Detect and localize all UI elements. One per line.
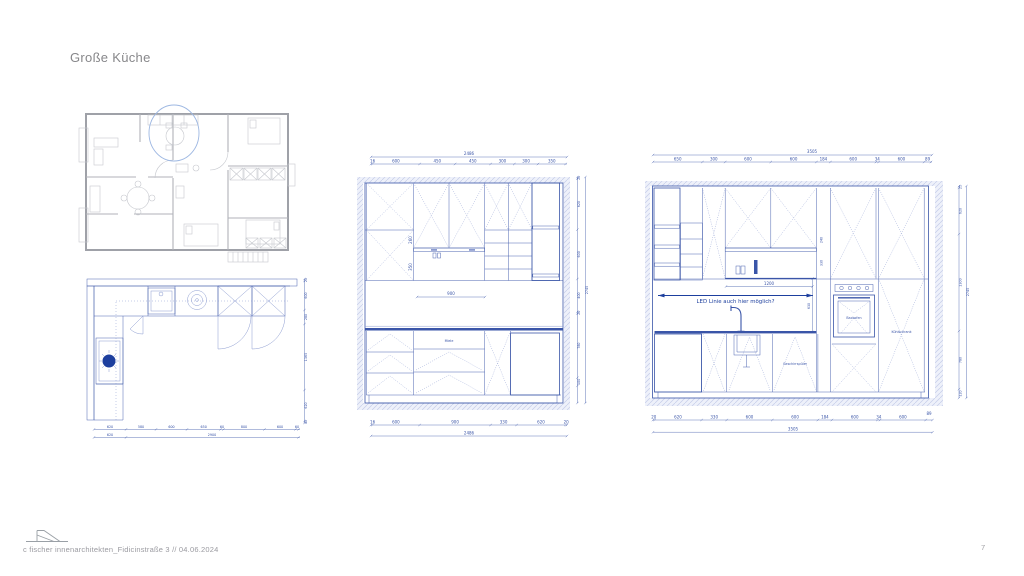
- dimension-text: 620: [537, 419, 545, 424]
- dimension-text: 300: [522, 158, 530, 163]
- dimension-row: 20 600 280 1365 620 40: [303, 278, 308, 424]
- dimension-text: 16: [370, 419, 376, 424]
- dimension-text: 1300: [958, 278, 962, 286]
- dimension-row: 25 620 1300 780 120 2745: [958, 185, 970, 399]
- appliance-label: Kühlschrank: [891, 330, 911, 334]
- dimension-text: 330: [710, 414, 718, 419]
- dimension-text: 120: [958, 390, 962, 396]
- dimension-text: 350: [548, 158, 556, 163]
- dimension-text: 2486: [464, 151, 475, 156]
- upper-cabinets: [365, 183, 563, 281]
- dimension-text: 2745: [585, 286, 589, 294]
- dimension-text: 800: [241, 425, 247, 429]
- dimension-text: 16: [370, 158, 376, 163]
- dimension-text: 400: [577, 292, 581, 298]
- section-cut-cabinet: [654, 188, 680, 280]
- dimension-text: 630: [807, 303, 811, 309]
- faucet-icon: [731, 306, 745, 332]
- company-logo-icon: [24, 527, 70, 545]
- dimension-text: 620: [674, 414, 682, 419]
- dimension-text: 60: [220, 425, 224, 429]
- dimension-text: 89: [925, 156, 931, 161]
- dimension-text: 620: [304, 402, 308, 408]
- kitchen-floorplan: 20 600 280 1365 620 40 620 580 600 650 6…: [85, 273, 315, 445]
- footer-credit: c fischer innenarchitekten_Fidicinstraße…: [23, 545, 218, 554]
- countertop: [365, 328, 563, 331]
- dimension-text: 780: [958, 357, 962, 363]
- door-swing-arc: [130, 316, 285, 349]
- dimension-text: 20: [651, 414, 657, 419]
- dimension-text: 600: [744, 156, 752, 161]
- dimension-text: 600: [392, 158, 400, 163]
- elevation-side: 3505 650 300 600 600 184 600 34 600 89: [645, 148, 985, 448]
- dimension-text: 260: [408, 236, 413, 244]
- dimension-text: 620: [107, 425, 113, 429]
- dimension-text: 600: [746, 414, 754, 419]
- cooktop-icon: [188, 291, 207, 310]
- dimension-row: 3505 650 300 600 600 184 600 34 600 89: [652, 149, 933, 163]
- dimension-text: 600: [392, 419, 400, 424]
- section-cut-cabinet: [655, 334, 702, 392]
- dimension-text: 1365: [304, 353, 308, 361]
- dimension-text: 350: [408, 263, 413, 271]
- dimension-text: 20: [564, 419, 570, 424]
- dimension-text: 3505: [788, 427, 799, 432]
- section-cut-cabinet: [511, 333, 560, 395]
- dimension-row: 2486 16 600 450 450 300 300 350: [370, 151, 568, 165]
- dimension-text: 620: [107, 433, 113, 437]
- dimension-text: 600: [277, 425, 283, 429]
- dimension-text: 20: [577, 176, 581, 180]
- dimension-text: 600: [168, 425, 174, 429]
- dimension-text: 650: [674, 156, 682, 161]
- dimension-text: 900: [451, 419, 459, 424]
- dimension-text: 450: [433, 158, 441, 163]
- dimension-text: 600: [849, 156, 857, 161]
- dimension-text: 600: [898, 156, 906, 161]
- furniture-symbols: [90, 115, 286, 262]
- appliance-label: Geschirrspüler: [783, 362, 808, 366]
- dimension-text: 620: [958, 208, 962, 214]
- dimension-text: 600: [304, 292, 308, 298]
- dimension-text: 184: [820, 156, 828, 161]
- elevation-front: 2486 16 600 450 450 300 300 350: [357, 150, 593, 450]
- dimension-text: 330: [500, 419, 508, 424]
- dimension-text: 2486: [464, 430, 475, 435]
- dimension-text: 600: [790, 156, 798, 161]
- page-title: Große Küche: [70, 50, 151, 65]
- dimension-text: 2745: [966, 288, 970, 296]
- dimension-text: 780: [577, 342, 581, 348]
- dimension-text: 89: [926, 411, 932, 416]
- dimension-text: 100: [577, 379, 581, 385]
- sink-icon: [734, 335, 760, 367]
- oven-icon: Backofen: [834, 295, 875, 337]
- open-shelves: [681, 223, 703, 280]
- dimension-text: 3505: [807, 149, 818, 154]
- section-cut-cabinet: [532, 183, 560, 281]
- dimension-text: 600: [851, 414, 859, 419]
- oven-knobs: [835, 285, 873, 292]
- dimension-text: 34: [875, 156, 881, 161]
- dimension-text: 580: [138, 425, 144, 429]
- appliance-label: Backofen: [846, 316, 861, 320]
- dimension-row: 89 20 620 330 600 600 184 600 34 600 350…: [651, 411, 933, 433]
- niche: 260 350: [408, 236, 485, 271]
- appliance-label: Miele: [445, 339, 454, 343]
- slide: Große Küche: [0, 0, 1024, 576]
- base-cabinets: Miele: [366, 331, 561, 403]
- dimension-text: 450: [469, 158, 477, 163]
- dimension-row: 20 620 600 400 20 780 100 2745: [576, 176, 589, 405]
- appliance-symbol: [96, 338, 123, 384]
- dimension-text: 330: [820, 260, 824, 266]
- dimension-row: 900: [416, 291, 486, 298]
- dimension-text: 600: [899, 414, 907, 419]
- dimension-row: 16 600 900 330 620 20 2486: [370, 419, 569, 437]
- dimension-text: 60: [295, 425, 299, 429]
- dimension-text: 20: [577, 311, 581, 315]
- base-cabinets: Geschirrspüler Kühlschrank: [655, 330, 926, 398]
- dimension-text: 25: [958, 185, 962, 189]
- dimension-text: 300: [710, 156, 718, 161]
- led-annotation-text: LED Linie auch hier möglich?: [697, 299, 775, 305]
- dimension-text: 184: [821, 414, 829, 419]
- dimension-text: 40: [304, 420, 308, 424]
- dimension-text: 280: [304, 314, 308, 320]
- dimension-text: 1200: [764, 281, 775, 286]
- apartment-floorplan: [78, 102, 303, 265]
- dimension-text: 650: [201, 425, 207, 429]
- dimension-text: 600: [791, 414, 799, 419]
- dimension-text: 900: [447, 291, 455, 296]
- dimension-text: 300: [499, 158, 507, 163]
- dimension-text: 600: [577, 251, 581, 257]
- page-number: 7: [981, 543, 985, 552]
- dimension-row: 620 580 600 650 60 800 600 60 620 2900: [93, 425, 300, 439]
- dimension-text: 20: [304, 278, 308, 282]
- dimension-text: 2900: [208, 433, 216, 437]
- dimension-text: 240: [820, 237, 824, 243]
- dimension-text: 34: [876, 414, 882, 419]
- countertop: [655, 331, 817, 333]
- led-annotation: 1200 LED Linie auch hier möglich? 630: [658, 277, 814, 333]
- dimension-text: 620: [577, 201, 581, 207]
